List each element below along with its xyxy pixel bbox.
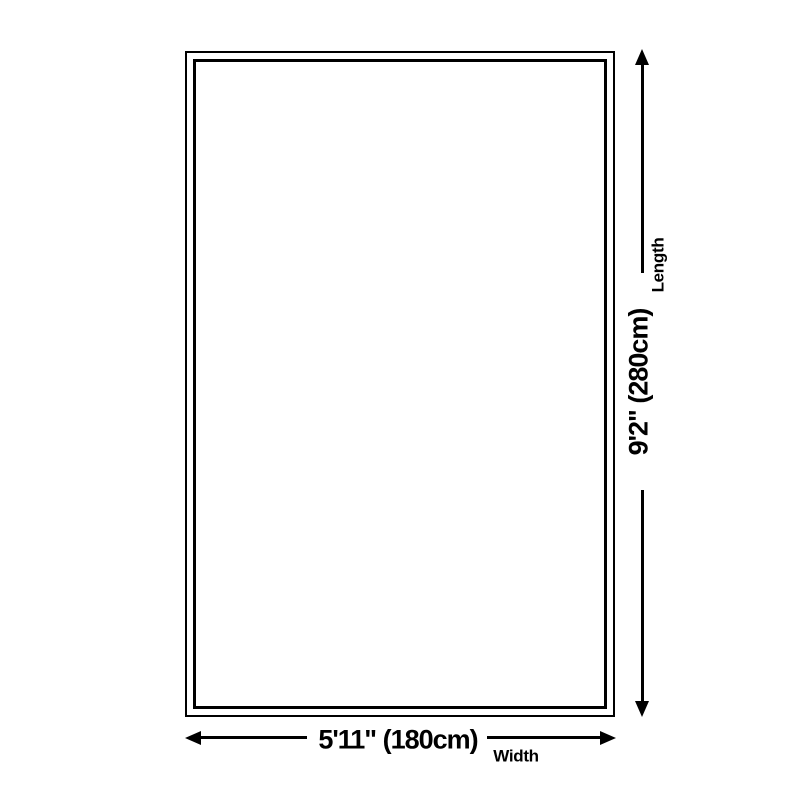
rug-size-diagram: Length 9'2" (280cm) 5'11" (180cm) Width: [0, 0, 800, 800]
length-dimension-line-bottom: [641, 490, 644, 703]
length-axis-label: Length: [650, 238, 667, 293]
width-axis-label: Width: [493, 748, 539, 765]
length-dimension-line-top: [641, 61, 644, 273]
width-dimension-line-right: [487, 736, 601, 739]
length-dimension-value: 9'2" (280cm): [626, 309, 653, 456]
width-dimension-line-left: [199, 736, 307, 739]
rug-inner-border: [193, 59, 607, 709]
width-dimension-value: 5'11" (180cm): [318, 727, 477, 754]
arrow-right-icon: [600, 731, 616, 745]
rug-outer-border: [185, 51, 615, 717]
arrow-down-icon: [635, 701, 649, 717]
